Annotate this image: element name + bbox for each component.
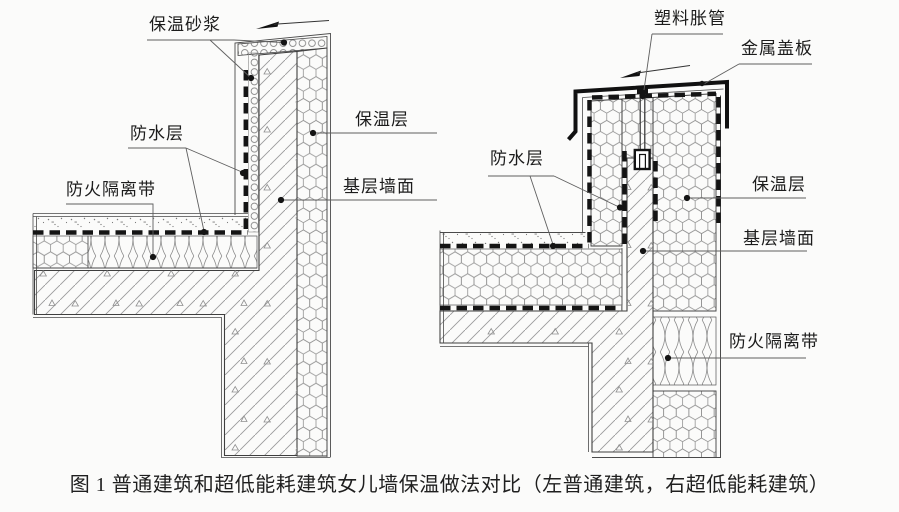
left-roof-fire-isolation-belt	[88, 236, 257, 268]
label-plastic-expansion-anchor: 塑料胀管	[654, 10, 726, 29]
slope-arrow-icon	[620, 66, 690, 79]
right-parapet-inner-insulation	[591, 99, 622, 246]
left-roof-screed	[33, 216, 248, 230]
left-roof-insulation-hex	[33, 236, 88, 268]
figure-caption: 图 1 普通建筑和超低能耗建筑女儿墙保温做法对比（左普通建筑，右超低能耗建筑）	[0, 468, 899, 497]
label-waterproof-layer-left: 防水层	[130, 125, 184, 144]
label-base-wall-right: 基层墙面	[743, 230, 815, 249]
left-diagram-ordinary-building	[33, 21, 437, 458]
label-fire-isolation-belt-left: 防火隔离带	[66, 181, 156, 200]
right-roof-insulation	[440, 249, 622, 305]
label-fire-isolation-belt-right: 防火隔离带	[729, 333, 819, 352]
right-wall-insulation-upper	[653, 94, 716, 312]
label-insulation-layer-left: 保温层	[355, 111, 409, 130]
left-parapet-insulation-layer	[297, 48, 327, 456]
slope-arrow-icon	[256, 21, 329, 30]
label-base-wall-left: 基层墙面	[343, 178, 415, 197]
label-insulation-mortar: 保温砂浆	[149, 16, 221, 35]
right-roof-screed	[440, 233, 586, 244]
right-wall-fire-isolation-belt	[653, 317, 716, 385]
label-waterproof-layer-right: 防水层	[490, 150, 544, 169]
label-insulation-layer-right: 保温层	[752, 176, 806, 195]
left-waterproof-membrane	[33, 70, 248, 234]
figure-parapet-insulation-comparison: 保温砂浆 防水层 防火隔离带 保温层 基层墙面 塑料胀管 金属盖板 防水层 保温…	[0, 0, 899, 512]
right-wall-insulation-lower	[653, 391, 716, 458]
label-metal-cover-plate: 金属盖板	[741, 40, 813, 59]
